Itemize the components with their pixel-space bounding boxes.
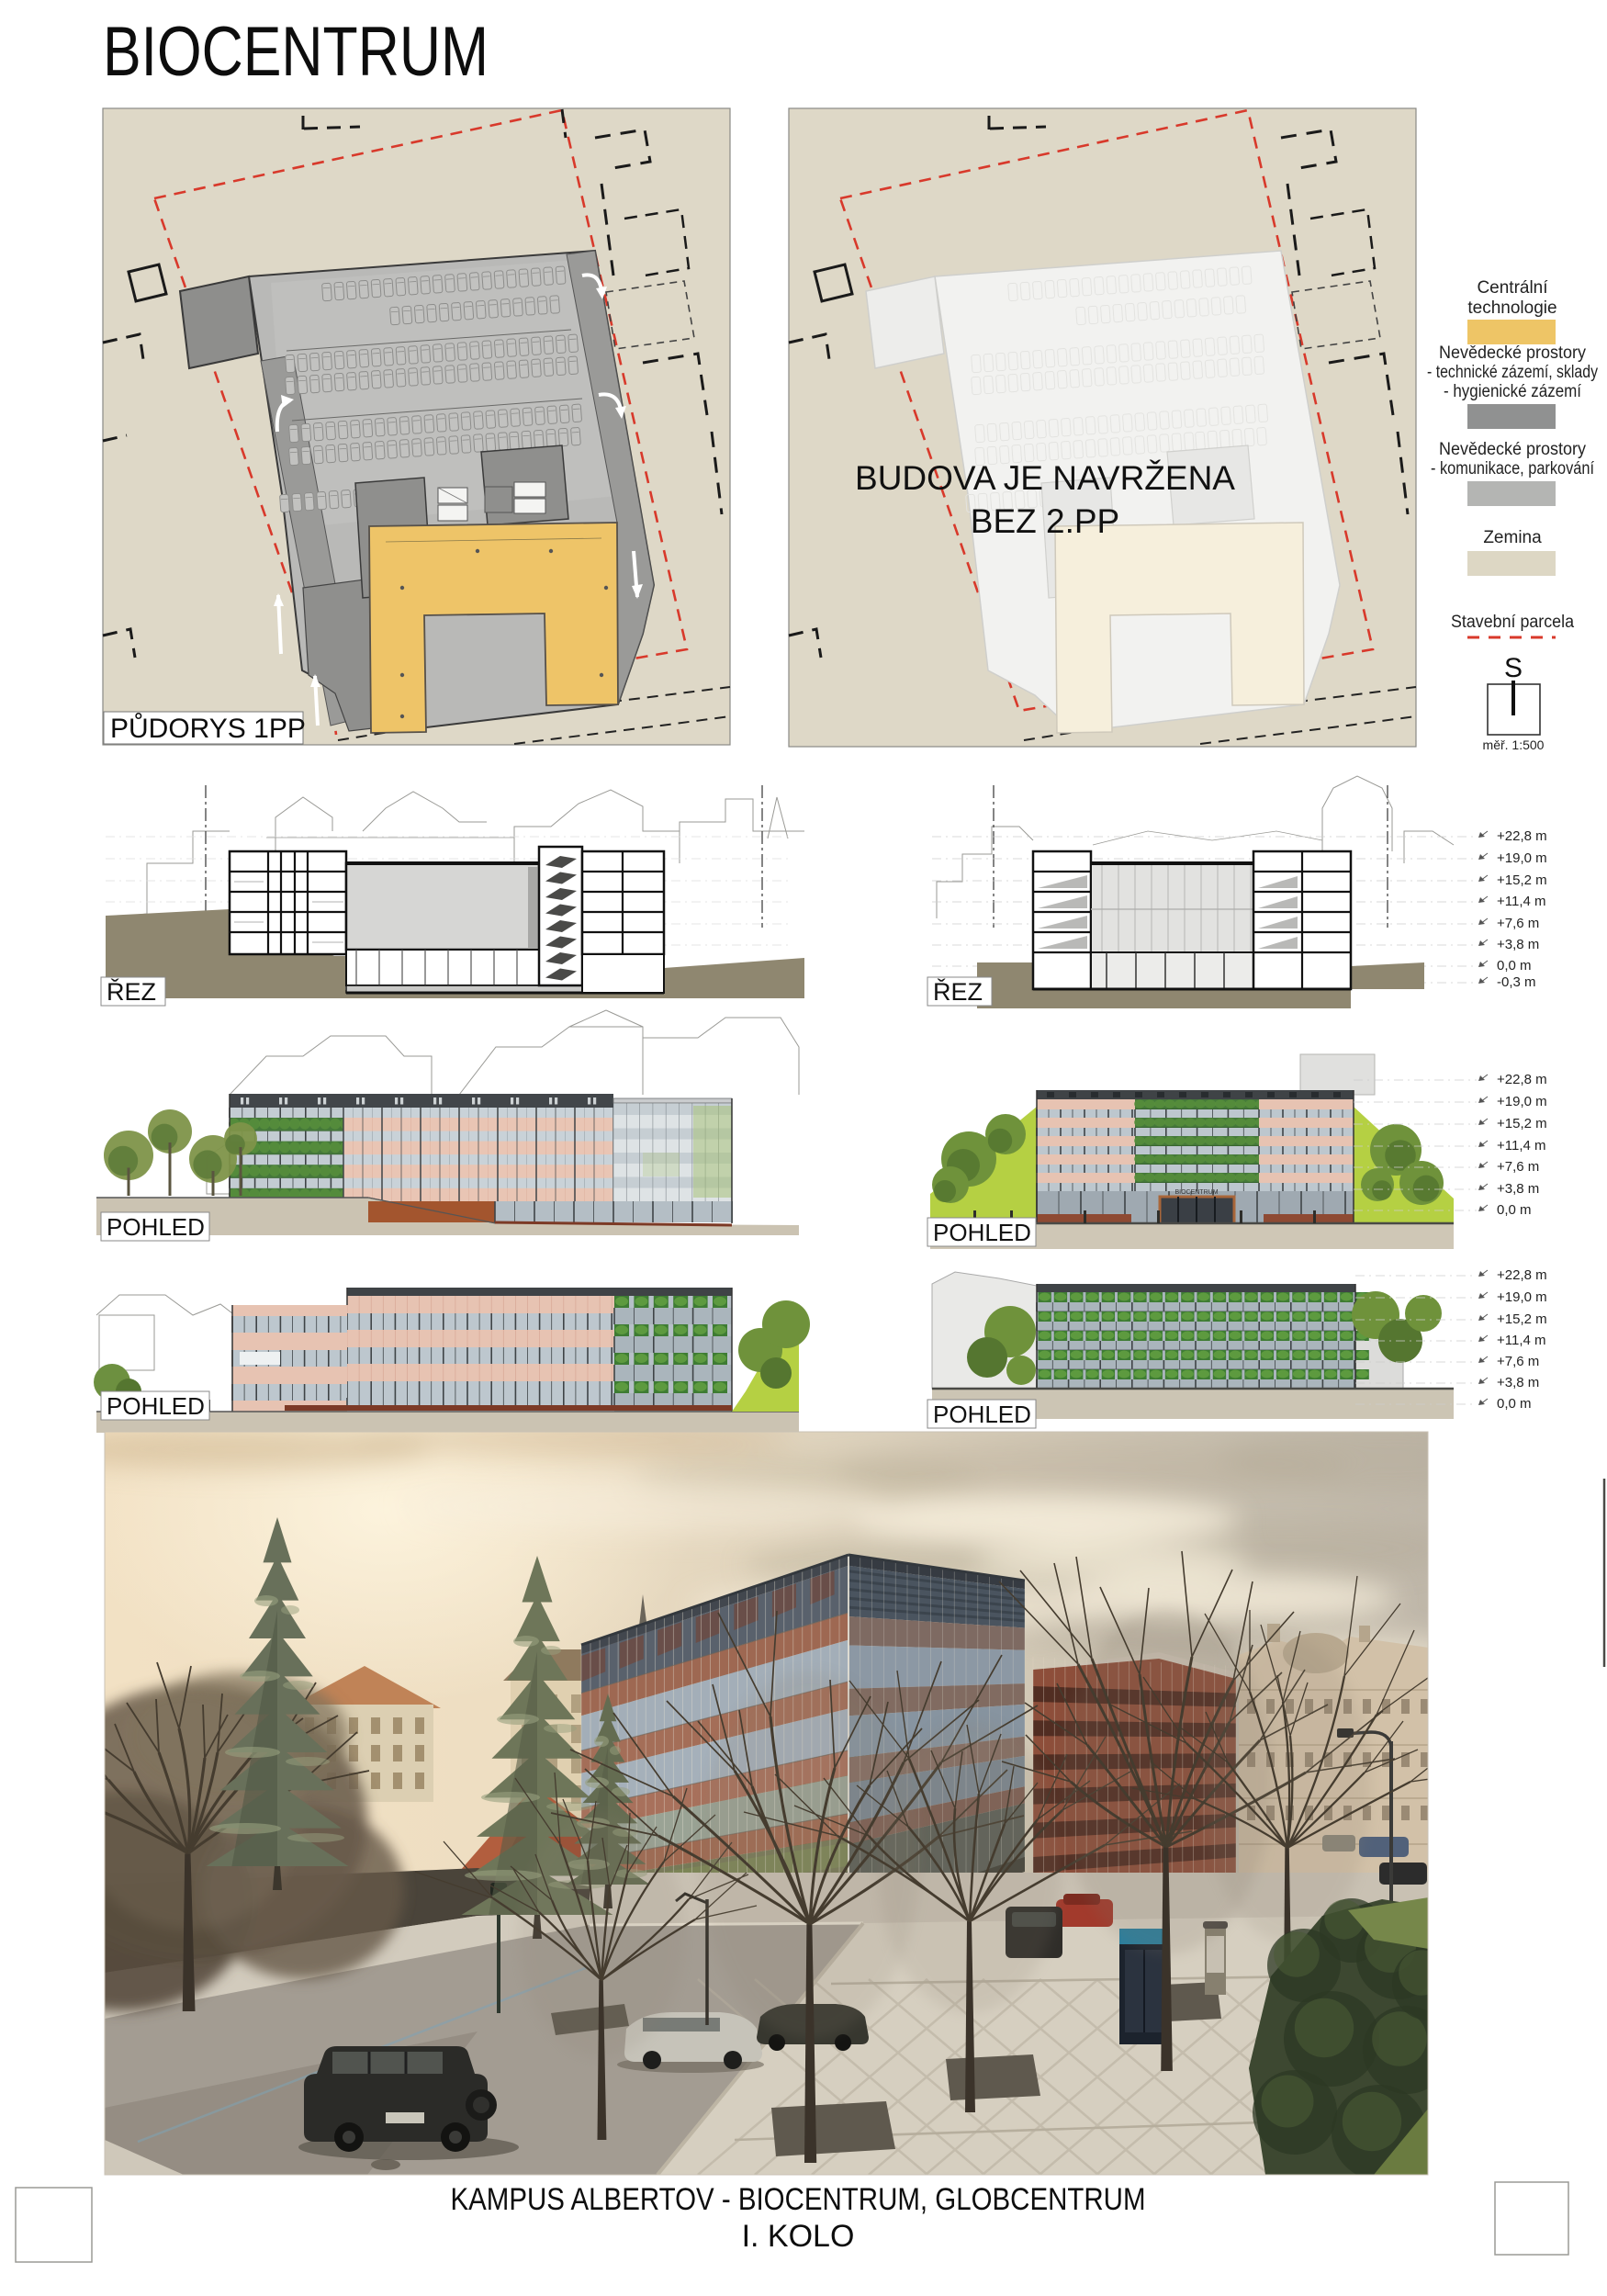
svg-text:+3,8 m: +3,8 m <box>1497 1375 1539 1390</box>
svg-text:+11,4 m: +11,4 m <box>1497 1138 1546 1154</box>
svg-text:+15,2 m: +15,2 m <box>1497 872 1547 888</box>
svg-text:+3,8 m: +3,8 m <box>1497 1181 1539 1197</box>
svg-text:+15,2 m: +15,2 m <box>1497 1116 1547 1131</box>
svg-text:+19,0 m: +19,0 m <box>1497 1289 1547 1305</box>
svg-text:+7,6 m: +7,6 m <box>1497 1354 1539 1369</box>
svg-text:0,0 m: 0,0 m <box>1497 1396 1532 1412</box>
svg-text:Nevědecké prostory: Nevědecké prostory <box>1439 440 1586 459</box>
svg-text:0,0 m: 0,0 m <box>1497 958 1532 974</box>
svg-text:POHLED: POHLED <box>107 1392 205 1420</box>
svg-text:POHLED: POHLED <box>107 1213 205 1241</box>
svg-text:KAMPUS ALBERTOV - BIOCENTRUM,: KAMPUS ALBERTOV - BIOCENTRUM, GLOBCENTRU… <box>451 2182 1146 2217</box>
svg-text:+15,2 m: +15,2 m <box>1497 1311 1547 1327</box>
svg-text:+11,4 m: +11,4 m <box>1497 894 1546 909</box>
svg-text:Stavební parcela: Stavební parcela <box>1451 613 1574 632</box>
svg-text:- komunikace, parkování: - komunikace, parkování <box>1431 459 1595 478</box>
svg-text:BUDOVA JE NAVRŽENA: BUDOVA JE NAVRŽENA <box>855 459 1235 497</box>
svg-text:POHLED: POHLED <box>933 1401 1031 1428</box>
svg-text:+3,8 m: +3,8 m <box>1497 937 1539 952</box>
svg-text:BIOCENTRUM: BIOCENTRUM <box>1174 1189 1218 1196</box>
svg-text:I. KOLO: I. KOLO <box>742 2219 855 2254</box>
svg-text:technologie: technologie <box>1467 298 1556 318</box>
svg-text:+11,4 m: +11,4 m <box>1497 1333 1546 1348</box>
svg-text:+22,8 m: +22,8 m <box>1497 1267 1547 1283</box>
svg-text:PŮDORYS 1PP: PŮDORYS 1PP <box>110 713 306 744</box>
svg-text:Zemina: Zemina <box>1483 528 1542 547</box>
svg-text:- technické zázemí, sklady: - technické zázemí, sklady <box>1427 363 1598 382</box>
svg-text:měř. 1:500: měř. 1:500 <box>1483 737 1545 752</box>
svg-text:Nevědecké prostory: Nevědecké prostory <box>1439 343 1586 363</box>
svg-text:0,0 m: 0,0 m <box>1497 1202 1532 1218</box>
svg-text:-0,3 m: -0,3 m <box>1497 974 1536 990</box>
svg-text:S: S <box>1504 653 1523 683</box>
svg-text:- hygienické zázemí: - hygienické zázemí <box>1444 382 1582 401</box>
svg-text:Centrální: Centrální <box>1477 278 1548 298</box>
svg-text:+19,0 m: +19,0 m <box>1497 850 1547 866</box>
svg-text:ŘEZ: ŘEZ <box>933 977 983 1006</box>
svg-text:BIOCENTRUM: BIOCENTRUM <box>103 13 489 91</box>
svg-text:+22,8 m: +22,8 m <box>1497 1072 1547 1087</box>
svg-text:+22,8 m: +22,8 m <box>1497 828 1547 844</box>
svg-text:BEZ 2.PP: BEZ 2.PP <box>971 502 1119 540</box>
svg-text:+19,0 m: +19,0 m <box>1497 1094 1547 1109</box>
svg-text:+7,6 m: +7,6 m <box>1497 1159 1539 1175</box>
svg-text:ŘEZ: ŘEZ <box>107 977 156 1006</box>
svg-text:+7,6 m: +7,6 m <box>1497 916 1539 931</box>
svg-text:POHLED: POHLED <box>933 1219 1031 1246</box>
